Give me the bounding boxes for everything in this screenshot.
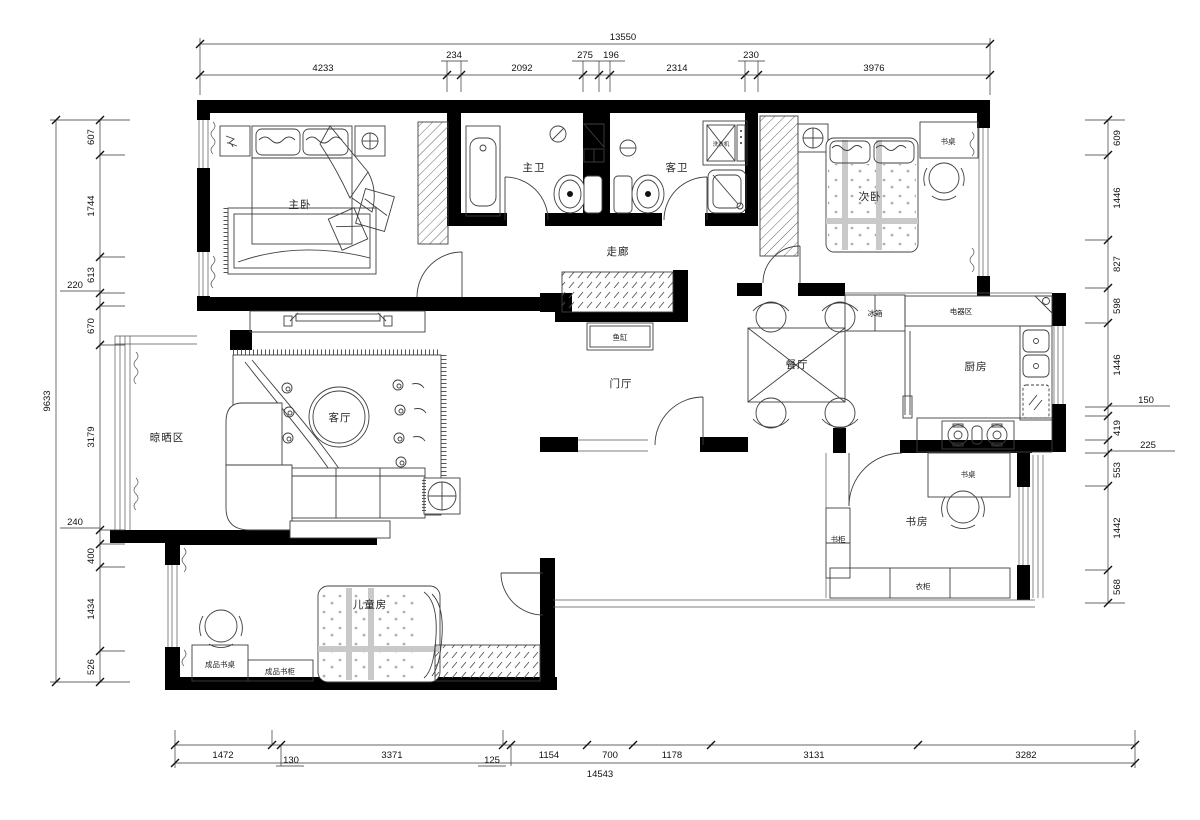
label-wardrobe: 衣柜 [916,581,931,591]
label-fridge: 冰箱 [868,308,883,318]
wardrobe-master [418,122,448,244]
ac-unit-icon [798,124,828,152]
dining-chair [822,398,858,428]
hatched-cabinet [435,645,540,681]
phone-icon [226,136,237,147]
side-table [424,478,460,514]
dim-bottom-seg: 3371 [381,750,402,761]
label-study-desk: 书桌 [961,469,976,479]
dim-top-seg: 3976 [863,63,884,74]
dim-top-total: 13550 [610,32,636,43]
toilet [554,175,602,213]
dim-top-seg: 2092 [511,63,532,74]
room-label-master-bedroom: 主卧 [289,198,312,211]
dim-left-seg: 400 [86,548,97,564]
dining-chair [753,302,789,332]
kids-room-door [501,573,543,615]
dining-chair [822,302,858,332]
dim-right-seg: 419 [1112,420,1123,436]
curtain-icon [970,248,974,272]
dim-left-seg: 240 [67,517,83,528]
label-fish-tank: 鱼缸 [613,332,628,342]
chair [924,163,964,200]
dim-left-seg: 1434 [86,598,97,619]
entrance-door [655,397,703,445]
dining-chair [753,398,789,428]
dim-left-seg: 526 [86,659,97,675]
label-appliance-area: 电器区 [950,306,973,316]
toilet [614,175,664,213]
dim-bottom-total: 14543 [587,769,613,780]
label-bookcase: 书柜 [831,534,846,544]
label-desk-second: 书桌 [941,136,956,146]
tv-console [250,311,425,332]
room-label-living: 客厅 [329,411,352,424]
dim-bottom-seg: 1154 [539,750,559,761]
dim-right-seg: 1446 [1112,187,1123,208]
appliance-counter [905,296,1052,326]
dim-bottom-seg: 1472 [212,750,233,761]
dim-left-seg: 670 [86,318,97,334]
room-label-second-bedroom: 次卧 [859,190,882,203]
living-room-furniture [226,311,460,538]
dim-left-seg: 1744 [86,195,97,216]
sofa-table [290,521,390,538]
dim-bottom-seg: 700 [602,750,618,761]
floor-plan-canvas: 洗衣机 [0,0,1200,820]
sofa [226,403,425,538]
dim-right-seg: 553 [1112,462,1123,478]
room-label-study: 书房 [906,515,929,528]
curtain-icon [211,256,215,288]
dimension-right: 609 1446 827 598 1446 150 419 225 553 14… [1085,116,1175,607]
dim-right-seg: 609 [1112,130,1123,146]
curtain-icon [182,650,186,666]
kitchen-slider-door [903,331,912,418]
label-kids-bookcase: 成品书柜 [265,666,295,676]
dimension-bottom: 14543 1472 130 3371 125 1154 700 1178 31… [171,730,1139,780]
dim-bottom-seg: 125 [484,755,500,766]
curtain-icon [182,548,186,572]
dim-right-seg: 1446 [1112,354,1123,375]
dim-bottom-seg: 1178 [662,750,682,761]
label-kids-desk: 成品书桌 [205,659,235,669]
study-door [849,453,902,506]
dimension-left: 9633 607 1744 613 220 670 3179 240 400 1… [42,116,130,686]
floor-plan-drawing: 洗衣机 [0,0,1200,820]
curtain-icon [134,352,138,384]
dim-left-seg: 220 [67,280,83,291]
dim-right-seg: 827 [1112,256,1123,272]
dim-right-seg: 1442 [1112,517,1123,538]
washing-machine: 洗衣机 [703,121,747,165]
dim-left-seg: 607 [86,129,97,145]
double-sink [1023,330,1049,377]
room-label-kids-room: 儿童房 [353,598,388,611]
dim-top-seg: 2314 [666,63,687,74]
curtain-icon [970,132,974,156]
master-bedroom-furniture [220,122,448,274]
guest-bath-door [664,177,707,220]
side-counter [1020,326,1052,420]
guest-sink [708,170,746,213]
dim-bottom-seg: 130 [283,755,299,766]
curtain-icon [134,478,138,510]
vanity [466,126,500,216]
master-bath-door [505,177,548,220]
room-label-foyer: 门厅 [610,377,633,390]
dim-bottom-seg: 3131 [803,750,824,761]
dim-right-seg: 598 [1112,298,1123,314]
dim-left-seg: 613 [86,267,97,283]
dim-right-seg: 568 [1112,579,1123,595]
dim-left-seg: 3179 [86,426,97,447]
curtain-icon [211,122,215,154]
master-bedroom-door [417,252,462,297]
chair [200,610,243,648]
wardrobe-second [760,116,798,256]
kitchen-fixtures [845,295,1052,452]
dim-bottom-seg: 3282 [1015,750,1036,761]
room-label-guest-bath: 客卫 [666,161,689,174]
dim-top-seg: 4233 [312,63,333,74]
shoe-cabinet [562,272,673,312]
washer-label: 洗衣机 [713,140,730,148]
room-label-dining: 餐厅 [786,358,809,371]
room-label-drying-area: 晾晒区 [150,431,185,444]
cutting-board [1023,385,1049,418]
dim-top-seg: 275 [577,50,593,61]
dim-top-seg: 196 [603,50,619,61]
dim-top-seg: 230 [743,50,759,61]
room-label-corridor: 走廊 [607,245,630,258]
dim-right-seg: 225 [1140,440,1156,451]
dim-top-seg: 234 [446,50,462,61]
room-label-kitchen: 厨房 [965,360,988,373]
dimension-top: 13550 4233 234 2092 275 196 2314 230 397… [196,32,994,95]
room-label-master-bath: 主卫 [523,162,546,174]
swirl-decor [282,380,426,467]
dim-left-total: 9633 [42,390,53,411]
dim-right-seg: 150 [1138,395,1154,406]
